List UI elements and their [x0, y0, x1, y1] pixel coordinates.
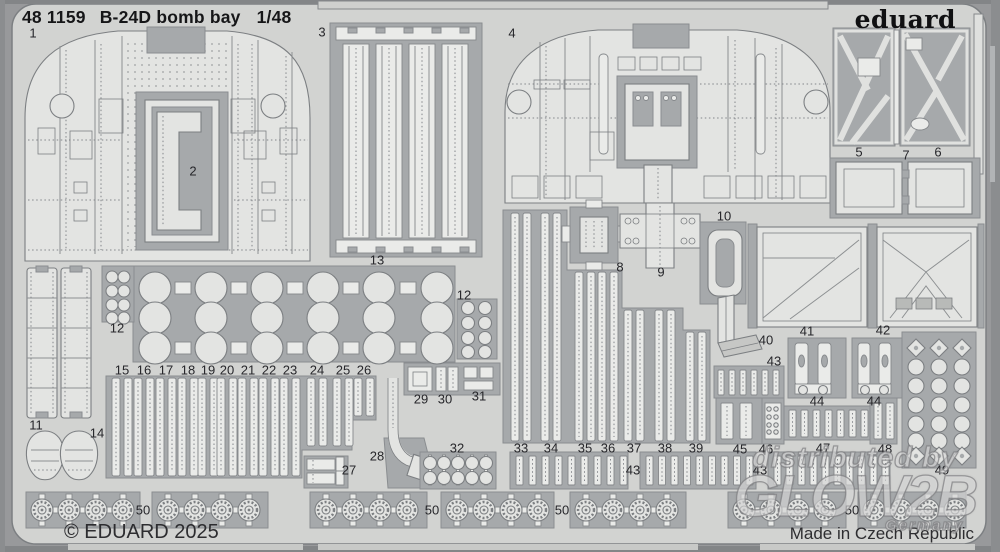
part-number-label: 48	[878, 441, 892, 456]
part-number-label: 25	[336, 362, 350, 377]
part-number-label: 40	[759, 332, 773, 347]
part-number-label: 23	[283, 362, 297, 377]
sheet-title: B-24D bomb bay	[100, 7, 241, 27]
catalog-number: 48 1159	[22, 7, 86, 27]
part-number-label: 5	[855, 144, 862, 159]
part-number-label: 20	[220, 362, 234, 377]
sheet-header: 48 1159B-24D bomb bay1/48	[22, 7, 291, 28]
part-number-label: 26	[357, 362, 371, 377]
eduard-logo: eduard	[855, 5, 956, 34]
part-number-label: 8	[616, 259, 623, 274]
part-number-label: 36	[601, 440, 615, 455]
part-number-label: 19	[201, 362, 215, 377]
part-number-label: 34	[544, 440, 558, 455]
part-number-label: 28	[370, 448, 384, 463]
part-number-label: 44	[810, 393, 824, 408]
part-number-label: 49	[935, 462, 949, 477]
part-5-truss-rib	[833, 28, 895, 146]
copyright-text: © EDUARD 2025	[64, 521, 219, 544]
part-number-label: 41	[800, 323, 814, 338]
part-number-label: 11	[29, 417, 43, 432]
part-number-label: 46	[759, 441, 773, 456]
part-number-label: 31	[472, 388, 486, 403]
part-number-label: 29	[414, 391, 428, 406]
part-number-label: 50	[845, 502, 859, 517]
part-44-mounts	[788, 338, 902, 398]
photoetch-sheet-scan: 1234576891011121312141516171819202122232…	[0, 0, 1000, 552]
part-number-label: 21	[241, 362, 255, 377]
part-number-label: 18	[181, 362, 195, 377]
part-number-label: 50	[555, 502, 569, 517]
part-number-label: 43	[626, 462, 640, 477]
part-number-label: 9	[657, 264, 664, 279]
part-number-label: 43	[753, 462, 767, 477]
part-number-label: 12	[457, 287, 471, 302]
part-number-label: 17	[159, 362, 173, 377]
part-number-label: 22	[262, 362, 276, 377]
part-number-label: 10	[717, 208, 731, 223]
part-number-label: 35	[578, 440, 592, 455]
part-number-label: 15	[115, 362, 129, 377]
part-number-label: 42	[876, 322, 890, 337]
part-number-label: 6	[934, 144, 941, 159]
part-number-label: 33	[514, 440, 528, 455]
part-42-door-panel	[868, 224, 984, 328]
part-number-label: 30	[438, 391, 452, 406]
part-number-label: 12	[110, 320, 124, 335]
part-41-door-panel	[748, 224, 867, 328]
framed-door-panels	[830, 158, 980, 218]
part-number-label: 7	[902, 147, 909, 162]
origin-text: Made in Czech Republic	[790, 524, 974, 544]
part-4-bulkhead-panel	[505, 24, 830, 203]
part-number-label: 4	[508, 25, 515, 40]
part-number-label: 47	[816, 440, 830, 455]
part-number-label: 2	[189, 163, 196, 178]
part-7-strip	[894, 30, 899, 144]
part-number-label: 43	[767, 353, 781, 368]
part-1-bulkhead-panel	[25, 27, 310, 261]
part-number-label: 39	[689, 440, 703, 455]
part-number-label: 32	[450, 440, 464, 455]
part-6-truss-rib	[900, 28, 970, 146]
part-10-frame	[700, 222, 746, 304]
fret-drawing: 1234576891011121312141516171819202122232…	[0, 0, 1000, 552]
part-number-label: 3	[318, 24, 325, 39]
sheet-scale: 1/48	[257, 7, 292, 27]
part-number-label: 14	[90, 425, 104, 440]
part-number-label: 24	[310, 362, 324, 377]
part-number-label: 38	[658, 440, 672, 455]
part-number-label: 27	[342, 462, 356, 477]
part-number-label: 16	[137, 362, 151, 377]
part-3-slat-panel	[330, 23, 482, 257]
part-number-label: 45	[733, 441, 747, 456]
part-number-label: 50	[425, 502, 439, 517]
part-number-label: 44	[867, 393, 881, 408]
part-number-label: 50	[136, 502, 150, 517]
part-number-label: 13	[370, 252, 384, 267]
part-number-label: 37	[627, 440, 641, 455]
